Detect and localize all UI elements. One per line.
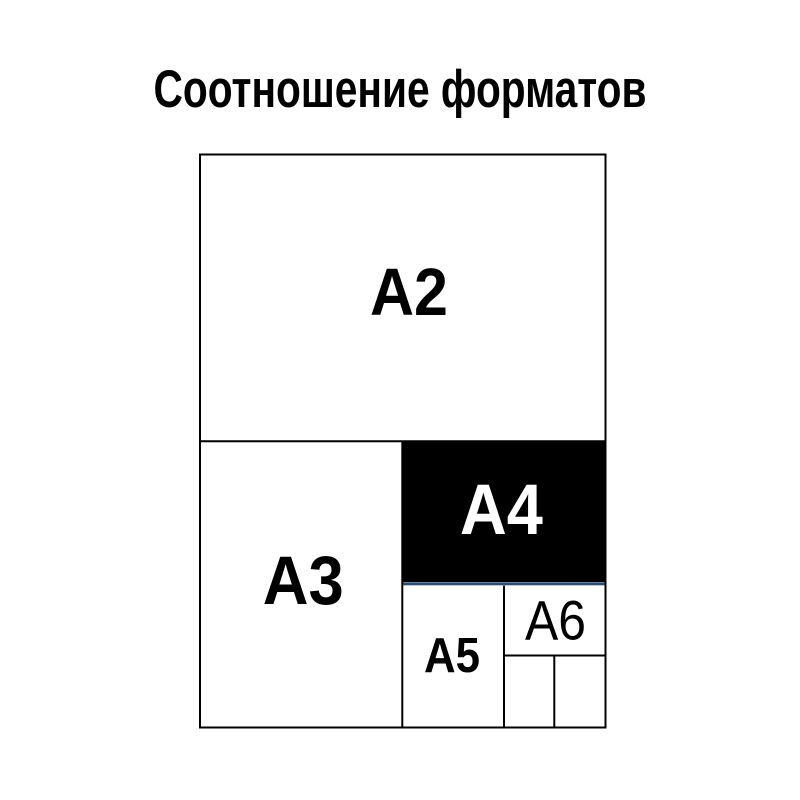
svg-text:A6: A6 <box>525 590 586 652</box>
svg-text:A2: A2 <box>370 255 448 330</box>
svg-text:A4: A4 <box>460 471 543 550</box>
svg-text:A3: A3 <box>263 542 344 619</box>
svg-text:A5: A5 <box>424 629 480 683</box>
svg-text:Соотношение форматов: Соотношение форматов <box>154 60 647 119</box>
